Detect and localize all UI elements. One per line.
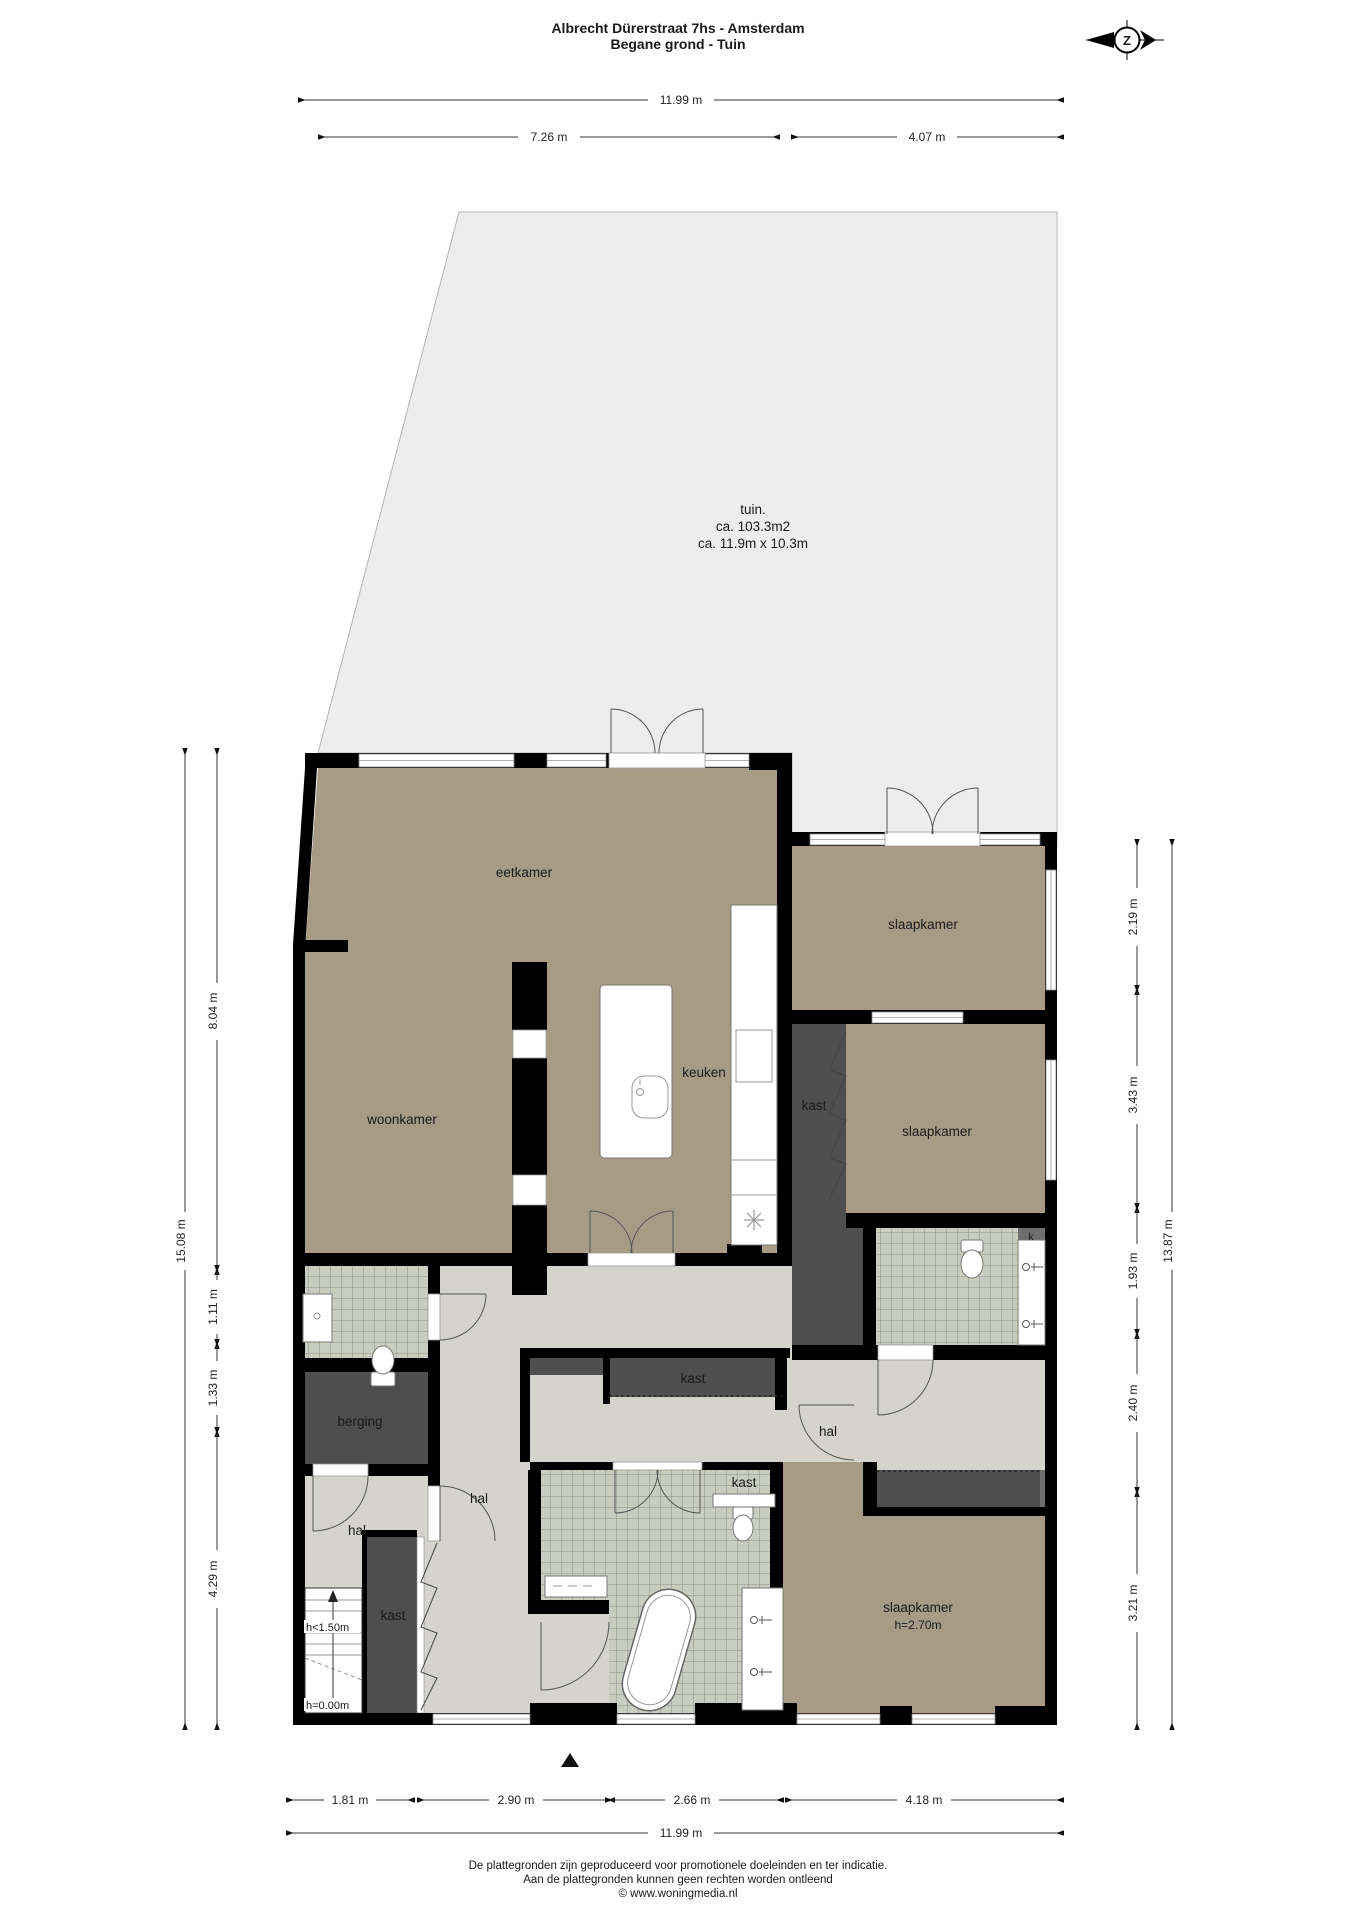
footer-line-3: © www.woningmedia.nl	[618, 1888, 737, 1900]
dim-bottom-total: 11.99 m	[660, 1826, 702, 1840]
dim-bottom-seg-0: 1.81 m	[332, 1793, 369, 1807]
dim-right-seg-2: 1.93 m	[1126, 1253, 1140, 1290]
room-label-kast-keuken: kast	[802, 1098, 827, 1113]
compass-label: Z	[1123, 33, 1131, 48]
dimensions-top: 11.99 m 7.26 m 4.07 m	[305, 93, 1057, 144]
dim-right-seg-3: 2.40 m	[1126, 1385, 1140, 1422]
dim-left-seg-3: 4.29 m	[206, 1561, 220, 1598]
room-label-kast-trap: kast	[381, 1608, 406, 1623]
entrance-marker-icon	[561, 1753, 579, 1767]
dim-bottom-seg-3: 4.18 m	[906, 1793, 943, 1807]
garden-area-label: ca. 103.3m2	[716, 519, 790, 534]
room-label-slaapkamer-1: slaapkamer	[888, 917, 958, 932]
dimensions-right: 13.87 m 2.19 m 3.43 m 1.93 m 2.40 m 3.21…	[1126, 846, 1175, 1723]
garden-area: tuin. ca. 103.3m2 ca. 11.9m x 10.3m	[318, 212, 1057, 846]
kitchen-counter	[731, 905, 777, 1245]
room-label-keuken: keuken	[682, 1065, 726, 1080]
washbasin-icon	[303, 1294, 332, 1342]
dim-left-seg-1: 1.11 m	[206, 1289, 220, 1325]
room-label-berging: berging	[337, 1414, 382, 1429]
room-label-hal-links: hal	[470, 1491, 488, 1506]
footer-line-1: De plattegronden zijn geproduceerd voor …	[469, 1860, 888, 1872]
dimensions-left: 15.08 m 8.04 m 1.11 m 1.33 m 4.29 m	[174, 755, 224, 1723]
room-label-k: k	[1028, 1231, 1034, 1243]
room-label-hal-rechts: hal	[819, 1424, 837, 1439]
page-subtitle: Begane grond - Tuin	[610, 36, 745, 52]
dim-bottom-seg-1: 2.90 m	[498, 1793, 535, 1807]
cooktop-icon	[744, 1210, 764, 1230]
compass-north-icon: Z	[1086, 20, 1164, 60]
floors	[305, 768, 1045, 1713]
room-label-hal-klein: hal	[348, 1523, 366, 1538]
footer-line-2: Aan de plattegronden kunnen geen rechten…	[523, 1874, 832, 1886]
dim-left-seg-2: 1.33 m	[206, 1370, 220, 1407]
room-label-kast-hal-boven: kast	[681, 1371, 706, 1386]
vanity	[1018, 1240, 1045, 1345]
dim-left-total: 15.08 m	[174, 1219, 188, 1262]
kitchen-island	[600, 985, 672, 1158]
stairs-upper-label: h<1.50m	[306, 1622, 349, 1634]
room-label-slaapkamer-3: slaapkamer	[883, 1600, 953, 1615]
dim-top-right: 4.07 m	[909, 130, 946, 144]
room-label-eetkamer: eetkamer	[496, 865, 553, 880]
dimensions-bottom: 1.81 m 2.90 m 2.66 m 4.18 m 11.99 m	[293, 1793, 1057, 1840]
stairs-ground-label: h=0.00m	[306, 1700, 349, 1712]
dim-top-total: 11.99 m	[660, 93, 702, 107]
dim-right-total: 13.87 m	[1161, 1219, 1175, 1262]
room-label-slaapkamer-2: slaapkamer	[902, 1124, 972, 1139]
footer: De plattegronden zijn geproduceerd voor …	[469, 1860, 888, 1900]
dim-right-seg-0: 2.19 m	[1126, 899, 1140, 936]
dim-bottom-seg-2: 2.66 m	[674, 1793, 711, 1807]
dim-right-seg-4: 3.21 m	[1126, 1585, 1140, 1622]
double-vanity	[742, 1588, 783, 1710]
floorplan-page: Albrecht Dürerstraat 7hs - Amsterdam Beg…	[0, 0, 1358, 1920]
page-title: Albrecht Dürerstraat 7hs - Amsterdam	[551, 20, 804, 36]
dim-left-seg-0: 8.04 m	[206, 993, 220, 1030]
room-label-kast-hal-onder: kast	[732, 1475, 757, 1490]
dim-right-seg-1: 3.43 m	[1126, 1077, 1140, 1114]
room-label-woonkamer: woonkamer	[366, 1112, 437, 1127]
dim-top-left: 7.26 m	[531, 130, 568, 144]
garden-size-label: ca. 11.9m x 10.3m	[698, 536, 808, 551]
garden-label: tuin.	[740, 502, 766, 517]
floor-plan-svg: Albrecht Dürerstraat 7hs - Amsterdam Beg…	[0, 0, 1358, 1920]
staircase: h<1.50m h=0.00m	[304, 1588, 362, 1713]
room-label-slaapkamer-3-height: h=2.70m	[894, 1618, 941, 1632]
